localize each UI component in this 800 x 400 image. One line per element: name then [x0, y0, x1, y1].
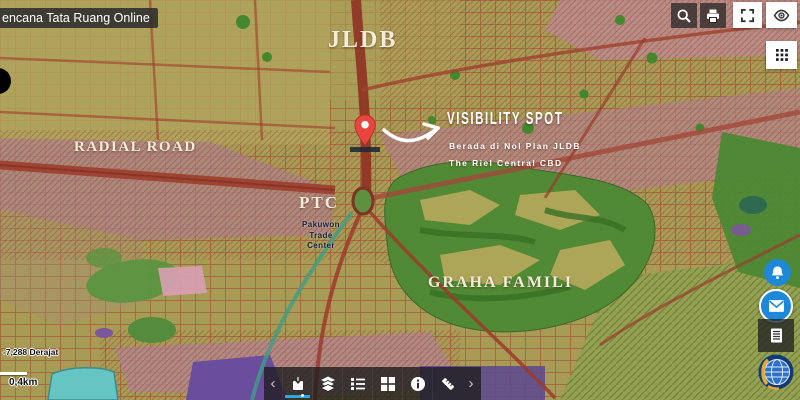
toolbar-basemap-button[interactable] — [282, 367, 312, 400]
app-title-bar: encana Tata Ruang Online — [0, 8, 158, 28]
toolbar-page-indicator — [301, 394, 304, 397]
bell-icon — [770, 265, 785, 280]
app-title: encana Tata Ruang Online — [2, 11, 150, 25]
info-icon — [410, 376, 426, 392]
legend-list-icon — [350, 376, 366, 392]
label-visibility-spot: VISIBILITY SPOT — [447, 110, 563, 129]
fullscreen-icon — [740, 8, 755, 23]
label-radial-road: RADIAL ROAD — [74, 139, 197, 156]
coordinate-readout: -7,288 Derajat — [3, 347, 58, 357]
toolbar-layers-button[interactable] — [312, 367, 342, 400]
search-button[interactable] — [671, 3, 697, 28]
basemap-icon — [290, 376, 306, 392]
scale-bar — [0, 372, 27, 375]
form-icon — [769, 327, 784, 344]
print-icon — [705, 8, 721, 24]
email-icon — [768, 299, 785, 313]
ptc-sub-line3: Center — [292, 241, 350, 252]
ptc-sub-line1: Pakuwon — [292, 220, 350, 231]
ministry-globe-icon — [757, 353, 795, 393]
map-pin-marker[interactable] — [354, 112, 376, 150]
eye-icon — [773, 7, 790, 24]
measure-icon — [440, 376, 456, 392]
toolbar-measure-button[interactable] — [432, 367, 462, 400]
map-app: JLDB RADIAL ROAD PTC Pakuwon Trade Cente… — [0, 0, 800, 400]
toolbar-grid-button[interactable] — [372, 367, 402, 400]
email-button[interactable] — [759, 289, 793, 323]
apps-grid-button[interactable] — [766, 41, 797, 69]
label-ptc: PTC — [299, 193, 339, 213]
notifications-button[interactable] — [764, 259, 791, 286]
label-spot-line1: Berada di Nol Plan JLDB — [449, 141, 581, 151]
label-graha-famili: GRAHA FAMILI — [428, 274, 573, 292]
bottom-toolbar: ‹ — [264, 367, 481, 400]
toolbar-next-button[interactable]: › — [462, 367, 480, 400]
label-jldb: JLDB — [328, 27, 397, 54]
apps-grid-icon — [774, 47, 790, 63]
ptc-sub-line2: Trade — [292, 231, 350, 242]
annotation-arrow — [380, 112, 446, 150]
toolbar-legend-button[interactable] — [342, 367, 372, 400]
visibility-button[interactable] — [766, 2, 797, 28]
grid-icon — [380, 376, 396, 392]
toolbar-prev-button[interactable]: ‹ — [264, 367, 282, 400]
map-render — [0, 0, 800, 400]
search-icon — [676, 8, 692, 24]
feedback-form-button[interactable] — [758, 319, 794, 352]
ministry-logo — [757, 353, 795, 393]
fullscreen-button[interactable] — [733, 2, 762, 28]
layers-icon — [320, 376, 336, 392]
print-button[interactable] — [700, 3, 726, 28]
scale-label: 0,4km — [9, 377, 37, 388]
label-spot-line2: The Riel Central CBD — [449, 158, 563, 168]
toolbar-info-button[interactable] — [402, 367, 432, 400]
label-ptc-subtitle: Pakuwon Trade Center — [292, 220, 350, 252]
